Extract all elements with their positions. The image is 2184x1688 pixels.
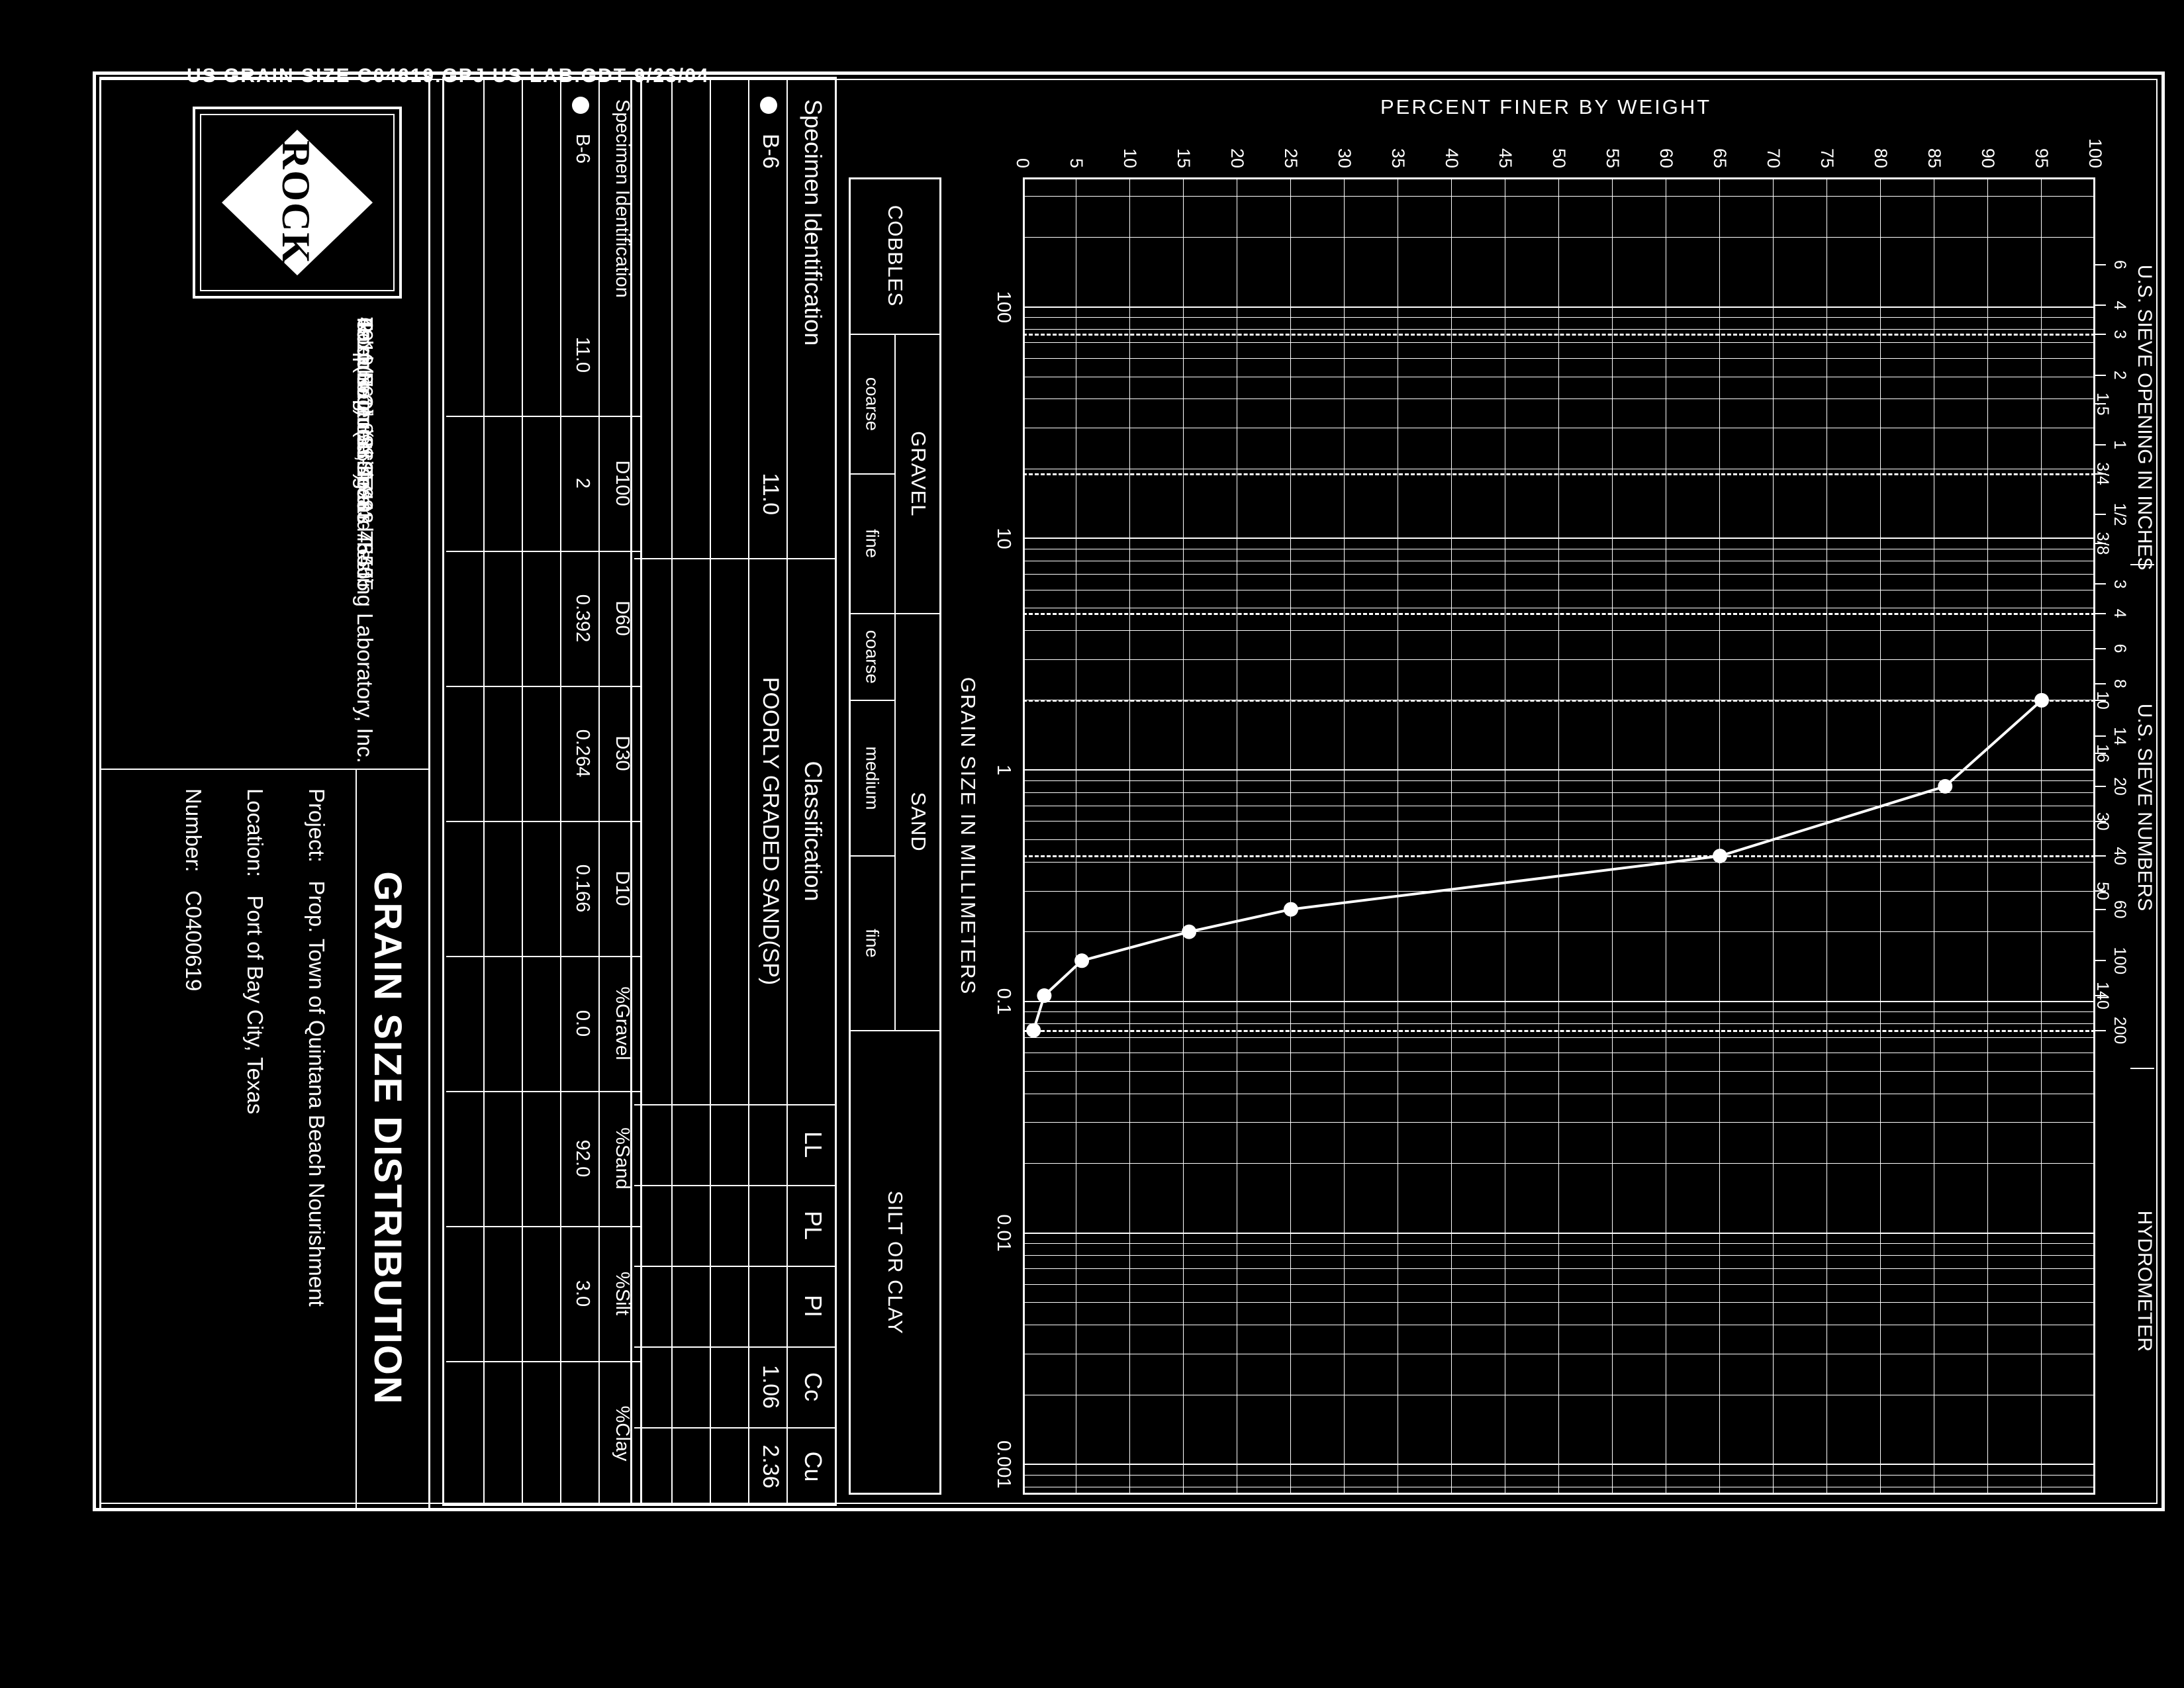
table-row-line bbox=[710, 77, 711, 1506]
percent-gridline bbox=[1398, 177, 1399, 1495]
column-header: Cc bbox=[799, 1346, 827, 1427]
sieve-tick-mark bbox=[2095, 735, 2106, 737]
column-header: %Sand bbox=[612, 1091, 634, 1226]
grain-size-decade-label: 0.1 bbox=[992, 988, 1014, 1015]
footer-block: ROCK Rock Engineering and Testing Labora… bbox=[99, 77, 430, 1510]
percent-axis-label: 25 bbox=[1280, 71, 1301, 168]
fraction-sublabel-medium: medium bbox=[862, 747, 882, 810]
percent-axis-label: 85 bbox=[1924, 71, 1944, 168]
minor-gridline bbox=[1023, 329, 2095, 330]
x-axis-title: GRAIN SIZE IN MILLIMETERS bbox=[956, 677, 980, 996]
grain-size-decade-label: 1 bbox=[992, 765, 1014, 775]
fraction-bar-divider bbox=[849, 700, 895, 701]
cell-value: 0.0 bbox=[572, 956, 594, 1091]
cell-value: 2 bbox=[572, 416, 594, 551]
specimen-depth: 11.0 bbox=[572, 273, 594, 373]
percent-gridline bbox=[1184, 177, 1184, 1495]
percent-gridline bbox=[1559, 177, 1560, 1495]
top-axis-section-name: U.S. SIEVE NUMBERS bbox=[2133, 584, 2156, 1030]
minor-gridline bbox=[1023, 806, 2095, 806]
sieve-tick-mark bbox=[2095, 613, 2106, 614]
sieve-tick-mark bbox=[2095, 786, 2106, 787]
column-header: Classification bbox=[799, 558, 827, 1104]
top-axis-section-name: HYDROMETER bbox=[2133, 1068, 2156, 1495]
minor-gridline bbox=[1023, 1325, 2095, 1325]
table-row-line bbox=[483, 77, 485, 1506]
column-header: PL bbox=[799, 1185, 827, 1266]
decade-gridline bbox=[1023, 306, 2095, 308]
specimen-symbol-dot bbox=[760, 97, 777, 114]
logo-diamond-icon: ROCK bbox=[195, 109, 399, 296]
specimen-id: B-6 bbox=[572, 134, 594, 266]
sieve-tick-mark bbox=[2095, 683, 2106, 684]
project-line: Project: Prop. Town of Quintana Beach No… bbox=[304, 788, 329, 1307]
column-header: PI bbox=[799, 1266, 827, 1346]
spec-id-header: Specimen Identification bbox=[612, 99, 634, 412]
sieve-size-label: 20 bbox=[2110, 777, 2129, 796]
fraction-sublabel-fine: fine bbox=[862, 529, 882, 558]
minor-gridline bbox=[1023, 1302, 2095, 1303]
percent-gridline bbox=[1934, 177, 1935, 1495]
minor-gridline bbox=[1023, 1284, 2095, 1285]
sieve-tick-mark bbox=[2095, 264, 2106, 265]
minor-gridline bbox=[1023, 1243, 2095, 1244]
minor-gridline bbox=[1023, 561, 2095, 561]
specimen-depth: 11.0 bbox=[757, 416, 783, 515]
minor-gridline bbox=[1023, 1255, 2095, 1256]
sieve-size-label: 2 bbox=[2110, 371, 2129, 380]
minor-gridline bbox=[1023, 1268, 2095, 1269]
fraction-label-silt-or-clay: SILT OR CLAY bbox=[883, 1191, 907, 1335]
fraction-label-gravel: GRAVEL bbox=[906, 431, 930, 516]
column-header: %Silt bbox=[612, 1226, 634, 1361]
minor-gridline bbox=[1023, 839, 2095, 840]
sieve-size-label: 14 bbox=[2110, 727, 2129, 745]
percent-gridline bbox=[1291, 177, 1292, 1495]
table-row-line bbox=[748, 77, 749, 1506]
number-line: Number: C0400619 bbox=[181, 788, 206, 991]
minor-gridline bbox=[1023, 1354, 2095, 1354]
column-header: %Gravel bbox=[612, 956, 634, 1091]
cell-value: 2.36 bbox=[757, 1427, 783, 1506]
minor-gridline bbox=[1023, 821, 2095, 821]
percent-gridline bbox=[1720, 177, 1721, 1495]
percent-axis-label: 75 bbox=[1817, 71, 1837, 168]
sieve-size-label: 200 bbox=[2110, 1017, 2129, 1045]
minor-gridline bbox=[1023, 342, 2095, 343]
minor-gridline bbox=[1023, 399, 2095, 399]
sieve-tick-mark bbox=[2095, 305, 2106, 306]
sieve-tick-mark bbox=[2095, 700, 2106, 701]
column-header: %Clay bbox=[612, 1361, 634, 1506]
minor-gridline bbox=[1023, 317, 2095, 318]
minor-gridline bbox=[1023, 358, 2095, 359]
cell-value: 0.264 bbox=[572, 686, 594, 821]
minor-gridline bbox=[1023, 237, 2095, 238]
percent-axis-label: 60 bbox=[1656, 71, 1676, 168]
percent-gridline bbox=[1076, 177, 1077, 1495]
column-header: Cu bbox=[799, 1427, 827, 1506]
number-value: C0400619 bbox=[181, 890, 206, 991]
minor-gridline bbox=[1023, 590, 2095, 590]
sieve-tick-mark bbox=[2095, 473, 2106, 475]
fraction-sublabel-coarse: coarse bbox=[862, 377, 882, 431]
project-value: Prop. Town of Quintana Beach Nourishment bbox=[305, 880, 329, 1306]
percent-axis-label: 55 bbox=[1602, 71, 1623, 168]
minor-gridline bbox=[1023, 1487, 2095, 1487]
fraction-bar-divider bbox=[849, 1030, 941, 1031]
minor-gridline bbox=[1023, 1395, 2095, 1395]
minor-gridline bbox=[1023, 891, 2095, 892]
percent-gridline bbox=[1452, 177, 1452, 1495]
percent-axis-label: 80 bbox=[1870, 71, 1891, 168]
table-row-line bbox=[598, 77, 600, 1506]
decade-gridline bbox=[1023, 538, 2095, 539]
location-value: Port of Bay City, Texas bbox=[243, 895, 267, 1114]
sieve-tick-mark bbox=[2095, 960, 2106, 961]
minor-gridline bbox=[1023, 428, 2095, 428]
cell-value: 92.0 bbox=[572, 1091, 594, 1226]
sieve-size-label: 6 bbox=[2110, 644, 2129, 653]
uscs-boundary-dashed-line bbox=[1023, 613, 2095, 615]
minor-gridline bbox=[1023, 1037, 2095, 1038]
fraction-bar-divider bbox=[849, 473, 895, 475]
minor-gridline bbox=[1023, 469, 2095, 469]
sieve-size-label: 1 bbox=[2110, 440, 2129, 449]
percent-gridline bbox=[1345, 177, 1345, 1495]
sieve-size-label: 4 bbox=[2110, 301, 2129, 310]
column-header: D30 bbox=[612, 686, 634, 821]
top-axis-section-name: U.S. SIEVE OPENING IN INCHES bbox=[2133, 265, 2156, 543]
percent-gridline bbox=[1774, 177, 1774, 1495]
grain-size-decade-label: 10 bbox=[992, 528, 1014, 549]
minor-gridline bbox=[1023, 1163, 2095, 1164]
sieve-tick-mark bbox=[2095, 514, 2106, 515]
minor-gridline bbox=[1023, 931, 2095, 932]
sieve-size-label: 60 bbox=[2110, 900, 2129, 919]
table-row-line bbox=[671, 77, 673, 1506]
minor-gridline bbox=[1023, 630, 2095, 631]
report-page: US GRAIN SIZE C04619.GPJ US LAB.GDT 9/23… bbox=[93, 71, 2165, 1511]
uscs-boundary-dashed-line bbox=[1023, 855, 2095, 857]
sieve-size-label: 3 bbox=[2110, 580, 2129, 589]
fraction-sublabel-fine: fine bbox=[862, 929, 882, 958]
sieve-tick-mark bbox=[2095, 543, 2106, 544]
minor-gridline bbox=[1023, 196, 2095, 197]
minor-gridline bbox=[1023, 377, 2095, 377]
number-label: Number: bbox=[181, 788, 206, 872]
percent-gridline bbox=[1130, 177, 1131, 1495]
table-row-line bbox=[786, 77, 788, 1506]
percent-axis-label: 20 bbox=[1227, 71, 1247, 168]
percent-gridline bbox=[1237, 177, 1238, 1495]
percent-axis-label: 15 bbox=[1173, 71, 1194, 168]
sieve-size-label: 100 bbox=[2110, 947, 2129, 974]
sieve-tick-mark bbox=[2095, 375, 2106, 376]
fraction-sublabel-coarse: coarse bbox=[862, 630, 882, 684]
sieve-size-label: 1/2 bbox=[2110, 503, 2129, 526]
percent-axis-label: 35 bbox=[1388, 71, 1408, 168]
percent-axis-label: 10 bbox=[1119, 71, 1140, 168]
minor-gridline bbox=[1023, 1011, 2095, 1012]
column-header: D10 bbox=[612, 821, 634, 956]
minor-gridline bbox=[1023, 1071, 2095, 1072]
sieve-tick-mark bbox=[2095, 444, 2106, 445]
cell-value: 3.0 bbox=[572, 1226, 594, 1361]
axis-section-separator bbox=[2130, 1068, 2154, 1069]
percent-axis-label: 45 bbox=[1495, 71, 1515, 168]
percent-gridline bbox=[1881, 177, 1881, 1495]
minor-gridline bbox=[1023, 549, 2095, 549]
percent-gridline bbox=[1505, 177, 1506, 1495]
minor-gridline bbox=[1023, 1023, 2095, 1024]
minor-gridline bbox=[1023, 792, 2095, 793]
minor-gridline bbox=[1023, 862, 2095, 863]
column-header: D100 bbox=[612, 416, 634, 551]
company-fax: Fax: (361) 883-4711 bbox=[348, 317, 382, 514]
minor-gridline bbox=[1023, 659, 2095, 660]
decade-gridline bbox=[1023, 1001, 2095, 1002]
column-header: D60 bbox=[612, 551, 634, 686]
sieve-tick-mark bbox=[2095, 821, 2106, 822]
sieve-tick-mark bbox=[2095, 334, 2106, 335]
sieve-tick-mark bbox=[2095, 753, 2106, 754]
sieve-tick-mark bbox=[2095, 1030, 2106, 1031]
percent-gridline bbox=[1827, 177, 1828, 1495]
percent-gridline bbox=[1988, 177, 1989, 1495]
fraction-label-sand: SAND bbox=[906, 792, 930, 851]
percent-axis-label: 30 bbox=[1334, 71, 1354, 168]
column-header: LL bbox=[799, 1104, 827, 1185]
svg-text:ROCK: ROCK bbox=[274, 140, 318, 265]
company-logo: ROCK bbox=[193, 107, 402, 299]
fraction-bar-tier-divider bbox=[894, 614, 896, 1031]
title-divider bbox=[356, 769, 357, 1508]
minor-gridline bbox=[1023, 1053, 2095, 1053]
sieve-size-label: 4 bbox=[2110, 609, 2129, 618]
minor-gridline bbox=[1023, 780, 2095, 781]
sieve-tick-mark bbox=[2095, 583, 2106, 585]
percent-axis-label: 0 bbox=[1012, 71, 1033, 168]
grain-size-decade-label: 0.001 bbox=[992, 1440, 1014, 1489]
fraction-bar-divider bbox=[849, 855, 895, 857]
minor-gridline bbox=[1023, 1122, 2095, 1123]
location-line: Location: Port of Bay City, Texas bbox=[242, 788, 267, 1114]
cell-value: 0.392 bbox=[572, 551, 594, 686]
percent-axis-label: 65 bbox=[1709, 71, 1730, 168]
project-label: Project: bbox=[305, 788, 329, 863]
percent-gridline bbox=[1613, 177, 1613, 1495]
decade-gridline bbox=[1023, 769, 2095, 771]
uscs-boundary-dashed-line bbox=[1023, 473, 2095, 475]
minor-gridline bbox=[1023, 574, 2095, 575]
minor-gridline bbox=[1023, 1475, 2095, 1476]
cell-value: 1.06 bbox=[757, 1346, 783, 1427]
cell-value: 0.166 bbox=[572, 821, 594, 956]
fraction-label-cobbles: COBBLES bbox=[883, 205, 907, 306]
spec-id-header: Specimen Identification bbox=[799, 99, 827, 554]
uscs-boundary-dashed-line bbox=[1023, 700, 2095, 702]
percent-axis-label: 50 bbox=[1548, 71, 1569, 168]
decade-gridline bbox=[1023, 1464, 2095, 1465]
percent-gridline bbox=[1666, 177, 1667, 1495]
uscs-boundary-dashed-line bbox=[1023, 1030, 2095, 1032]
grain-size-decade-label: 100 bbox=[992, 291, 1014, 323]
percent-axis-label: 70 bbox=[1763, 71, 1783, 168]
minor-gridline bbox=[1023, 608, 2095, 608]
report-title: GRAIN SIZE DISTRIBUTION bbox=[365, 769, 410, 1508]
location-label: Location: bbox=[243, 788, 267, 877]
sieve-tick-mark bbox=[2095, 403, 2106, 404]
table-row-line bbox=[522, 77, 523, 1506]
percent-axis-label: 40 bbox=[1441, 71, 1462, 168]
sieve-tick-mark bbox=[2095, 909, 2106, 910]
percent-axis-label: 95 bbox=[2031, 71, 2052, 168]
sieve-size-label: 40 bbox=[2110, 847, 2129, 865]
sieve-size-label: 8 bbox=[2110, 679, 2129, 688]
percent-axis-label: 100 bbox=[2085, 71, 2105, 168]
percent-axis-label: 90 bbox=[1977, 71, 1998, 168]
decade-gridline bbox=[1023, 1233, 2095, 1234]
cell-value: POORLY GRADED SAND(SP) bbox=[757, 558, 783, 1104]
uscs-boundary-dashed-line bbox=[1023, 334, 2095, 336]
table-row-line bbox=[560, 77, 561, 1506]
grain-size-decade-label: 0.01 bbox=[992, 1214, 1014, 1251]
axis-section-separator bbox=[2130, 564, 2154, 565]
sieve-size-label: 6 bbox=[2110, 260, 2129, 269]
scanned-report-canvas: US GRAIN SIZE C04619.GPJ US LAB.GDT 9/23… bbox=[0, 0, 2184, 1688]
sieve-tick-mark bbox=[2095, 855, 2106, 857]
sieve-size-label: 3 bbox=[2110, 330, 2129, 339]
percent-gridline bbox=[2042, 177, 2042, 1495]
specimen-symbol-dot bbox=[572, 97, 589, 114]
sieve-tick-mark bbox=[2095, 648, 2106, 649]
sieve-tick-mark bbox=[2095, 890, 2106, 892]
sieve-tick-mark bbox=[2095, 995, 2106, 996]
percent-axis-label: 5 bbox=[1066, 71, 1086, 168]
specimen-id: B-6 bbox=[757, 134, 783, 266]
minor-gridline bbox=[1023, 1094, 2095, 1094]
